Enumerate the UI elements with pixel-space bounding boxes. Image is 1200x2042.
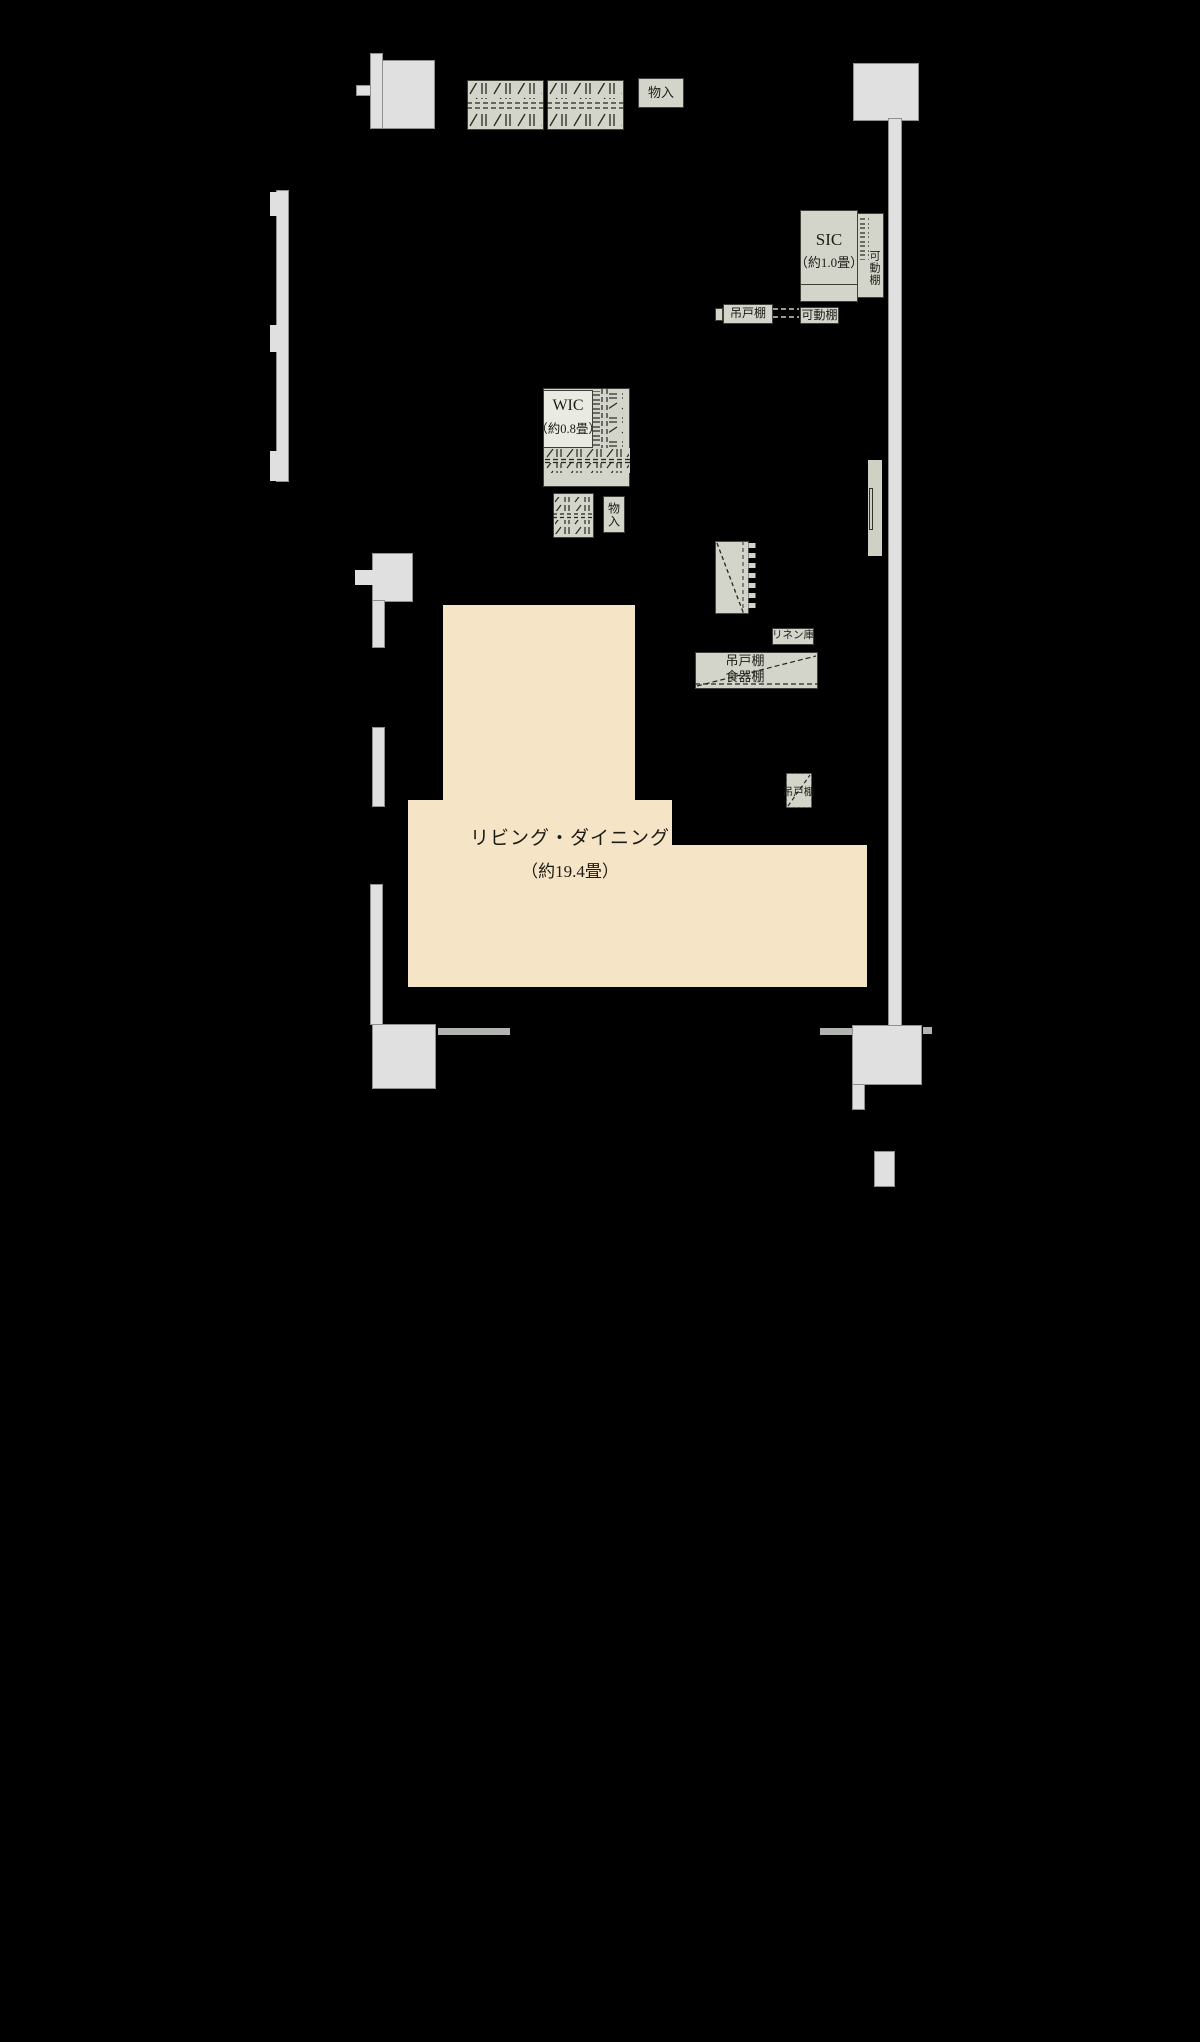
wall-bottom-right-extension: [852, 1084, 865, 1110]
wall-mid-left-notch: [355, 570, 373, 585]
wall-left-segment-2: [372, 727, 385, 807]
movable-shelf-box-label: 可動棚: [800, 307, 839, 324]
wall-bottom-left-block: [372, 1024, 436, 1089]
wall-mid-left-block: [372, 553, 413, 602]
hanging-cupboard-small-label: 吊戸棚: [777, 786, 820, 800]
wall-strip-bottom-far-right: [923, 1027, 932, 1034]
sic-name: SIC: [800, 230, 858, 250]
wall-left-notch-1: [270, 192, 277, 216]
hanging-cupboard-hall-dashes: [773, 306, 799, 320]
wall-strip-bottom-right: [820, 1028, 852, 1035]
sic-room-divider: [801, 284, 857, 285]
wic-name: WIC: [543, 396, 593, 416]
living-dining-size: （約19.4畳）: [450, 860, 690, 884]
wall-mid-left-stem: [372, 600, 385, 648]
wall-small-right-block: [874, 1151, 895, 1187]
wic-hatch-horizontal: [545, 448, 630, 473]
wall-strip-bottom-left: [438, 1028, 510, 1035]
wall-right-vertical-bar: [888, 118, 902, 1026]
wall-left-notch-3: [270, 451, 277, 481]
hanging-cupboard-hall-cap: [715, 308, 723, 321]
storage-mid-closet: [553, 493, 594, 538]
hanging-cupboard-kitchen-label: 吊戸棚: [700, 654, 790, 669]
linen-closet-label: リネン庫: [772, 628, 814, 645]
wall-left-vertical-bar: [276, 190, 289, 482]
storage-top-label: 物入: [638, 78, 684, 108]
wall-top-left-b: [382, 60, 435, 129]
wall-left-segment-3: [370, 884, 383, 1025]
dish-cabinet-label: 食器棚: [700, 670, 790, 685]
tall-cabinet: [715, 541, 759, 614]
hanging-cupboard-hall-label: 吊戸棚: [723, 304, 773, 324]
closet-top-1: [467, 80, 544, 130]
wall-top-right-block: [853, 63, 919, 121]
sic-size: （約1.0畳）: [793, 254, 865, 272]
movable-shelf-vertical-label: 可動棚: [866, 240, 882, 296]
wall-bottom-right-block: [852, 1025, 922, 1085]
door-frame-detail: [869, 488, 873, 530]
closet-top-2: [547, 80, 624, 130]
floorplan-canvas: リビング・ダイニング （約19.4畳） 物入 SIC （約1.0畳） 可動棚 吊…: [0, 0, 1200, 2042]
wall-top-left-notch: [356, 85, 371, 96]
storage-mid-label: 物入: [603, 496, 625, 533]
living-dining-name: リビング・ダイニング: [450, 826, 690, 852]
wic-size: （約0.8畳）: [538, 420, 598, 438]
wall-left-notch-2: [270, 325, 277, 352]
